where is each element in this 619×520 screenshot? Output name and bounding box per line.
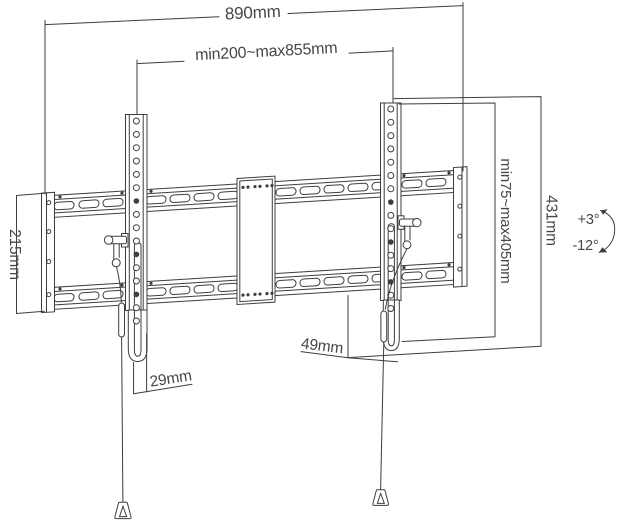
right-bottom-offset-label: 49mm xyxy=(300,335,344,357)
left-bracket-hook xyxy=(128,310,147,362)
plate-height-label: 215mm xyxy=(6,229,23,280)
left-vesa-bracket xyxy=(104,115,147,362)
bracket-range-label: min75~max405mm xyxy=(497,158,514,283)
diagram-canvas: 890mm min200~max855mm 215mm min75~max405… xyxy=(0,0,619,520)
dimension-mounting-span: min200~max855mm xyxy=(137,40,393,114)
tilt-angle-indicator: +3° -12° xyxy=(573,209,615,254)
left-bottom-offset-label: 29mm xyxy=(149,367,193,390)
bracket-height-label: 431mm xyxy=(543,195,560,246)
total-width-label: 890mm xyxy=(225,2,282,24)
dimension-plate-height: 215mm xyxy=(6,193,45,313)
diagram: 890mm min200~max855mm 215mm min75~max405… xyxy=(0,0,619,520)
left-end-cap xyxy=(42,192,55,312)
tilt-down-label: -12° xyxy=(573,238,599,254)
center-adapter-plate xyxy=(237,176,275,304)
left-latch xyxy=(104,234,128,267)
mounting-span-label: min200~max855mm xyxy=(195,40,338,64)
right-end-cap xyxy=(454,167,468,287)
tilt-arc-icon xyxy=(599,211,615,253)
tilt-up-label: +3° xyxy=(578,212,600,228)
